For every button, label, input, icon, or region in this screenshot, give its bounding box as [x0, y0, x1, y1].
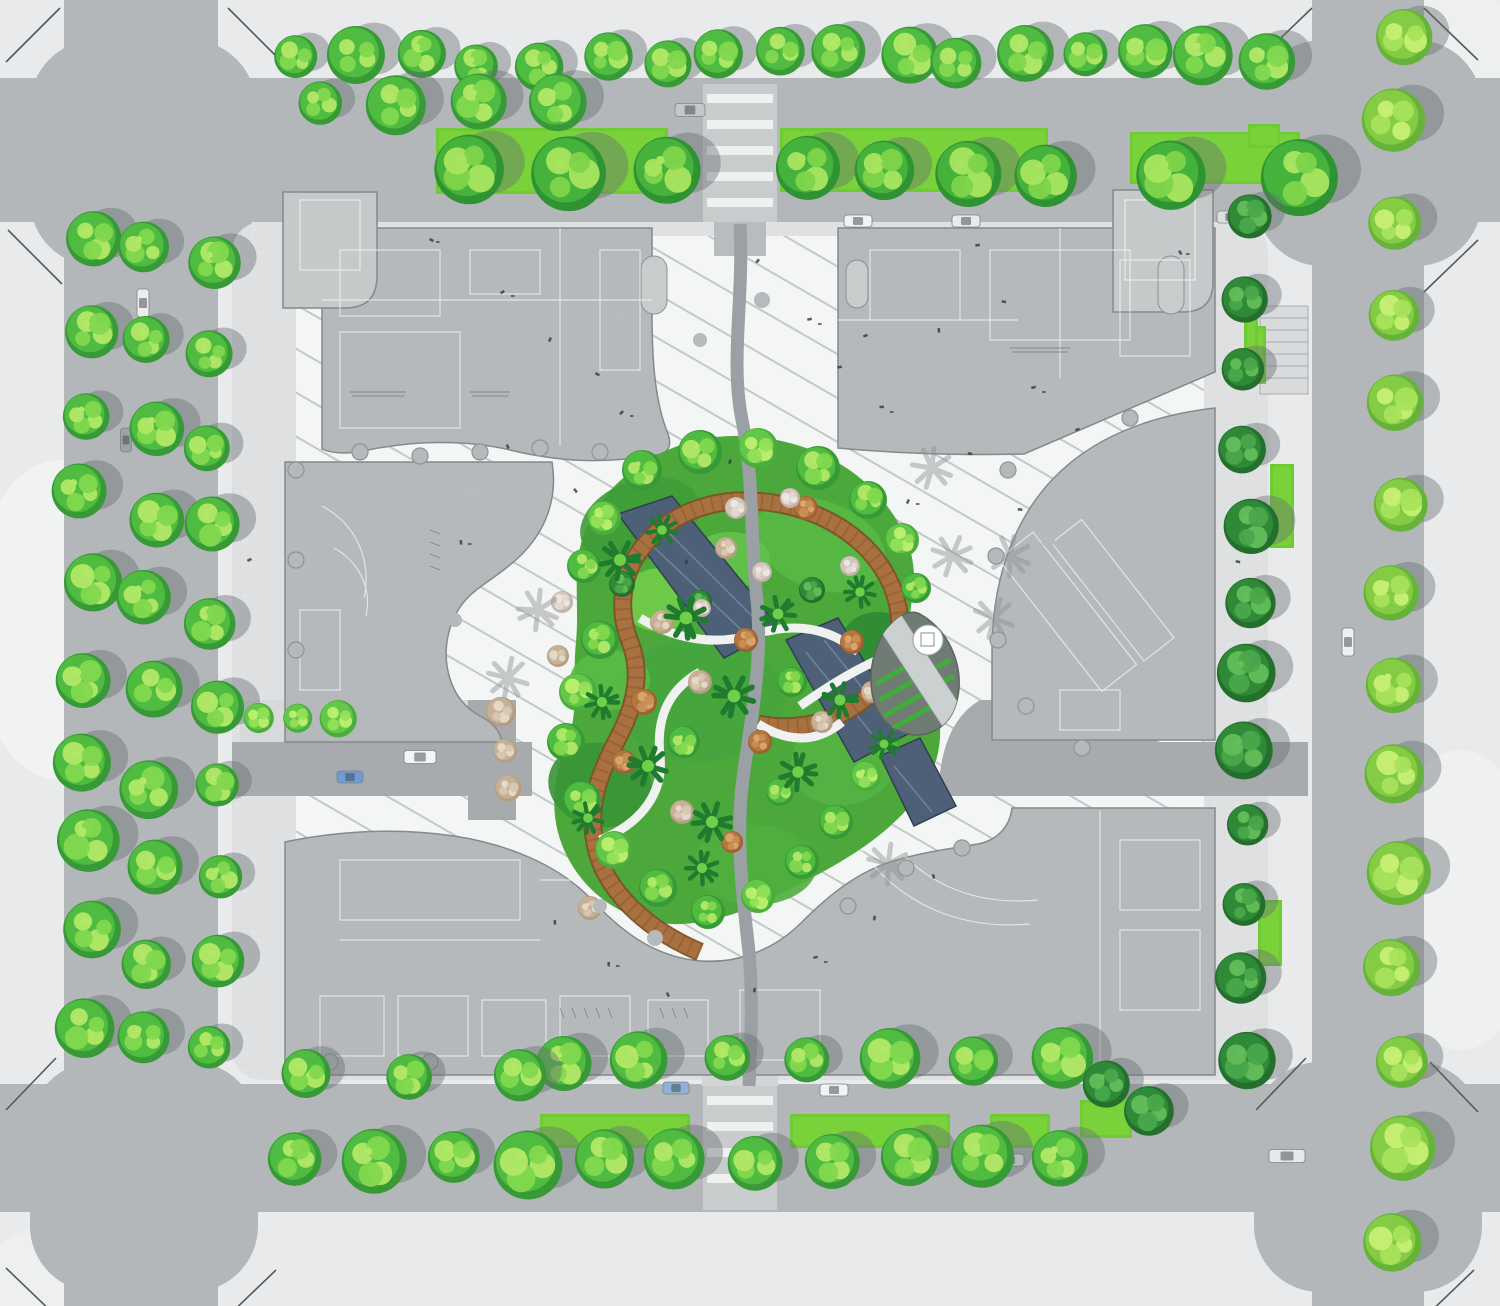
- tree: [493, 739, 517, 763]
- car: [137, 289, 149, 317]
- car: [404, 751, 436, 764]
- car: [337, 771, 363, 783]
- tree: [851, 761, 881, 791]
- tree: [849, 481, 887, 519]
- tree: [741, 879, 775, 913]
- tree: [799, 577, 825, 603]
- tree: [631, 689, 657, 715]
- tree: [650, 610, 674, 634]
- car: [663, 1082, 689, 1094]
- tree: [777, 667, 807, 697]
- tree: [678, 430, 722, 474]
- tree: [244, 703, 274, 733]
- tree: [595, 831, 633, 869]
- tree: [738, 428, 778, 468]
- car: [1269, 1150, 1305, 1163]
- tree: [547, 723, 585, 761]
- tree: [715, 537, 737, 559]
- tree: [885, 523, 919, 557]
- tree: [639, 869, 677, 907]
- tree: [688, 670, 712, 694]
- tree: [901, 573, 931, 603]
- tree: [819, 805, 853, 839]
- intersection-southwest: [30, 1062, 258, 1292]
- site-plan-stage: [0, 0, 1500, 1306]
- tree: [670, 800, 694, 824]
- tree: [752, 562, 772, 582]
- tree: [581, 621, 619, 659]
- tree: [780, 488, 800, 508]
- tree: [587, 501, 621, 535]
- pavilion-lift-circle: [913, 625, 943, 655]
- tree: [734, 628, 758, 652]
- tree: [691, 895, 725, 929]
- tree: [796, 446, 840, 490]
- tree: [668, 726, 700, 758]
- car: [1342, 628, 1354, 656]
- car: [844, 215, 872, 227]
- site-plan-svg: [0, 0, 1500, 1306]
- tree: [486, 697, 516, 727]
- tree: [725, 497, 747, 519]
- tree: [840, 630, 864, 654]
- tree: [622, 450, 662, 490]
- car: [820, 1084, 848, 1096]
- tree: [495, 775, 521, 801]
- tree: [567, 549, 601, 583]
- tree: [547, 645, 569, 667]
- tree: [840, 556, 860, 576]
- tree: [721, 831, 743, 853]
- tree: [785, 845, 819, 879]
- car: [675, 104, 705, 117]
- car: [952, 215, 980, 227]
- tree: [320, 700, 357, 737]
- tree: [283, 704, 312, 733]
- tree: [748, 730, 772, 754]
